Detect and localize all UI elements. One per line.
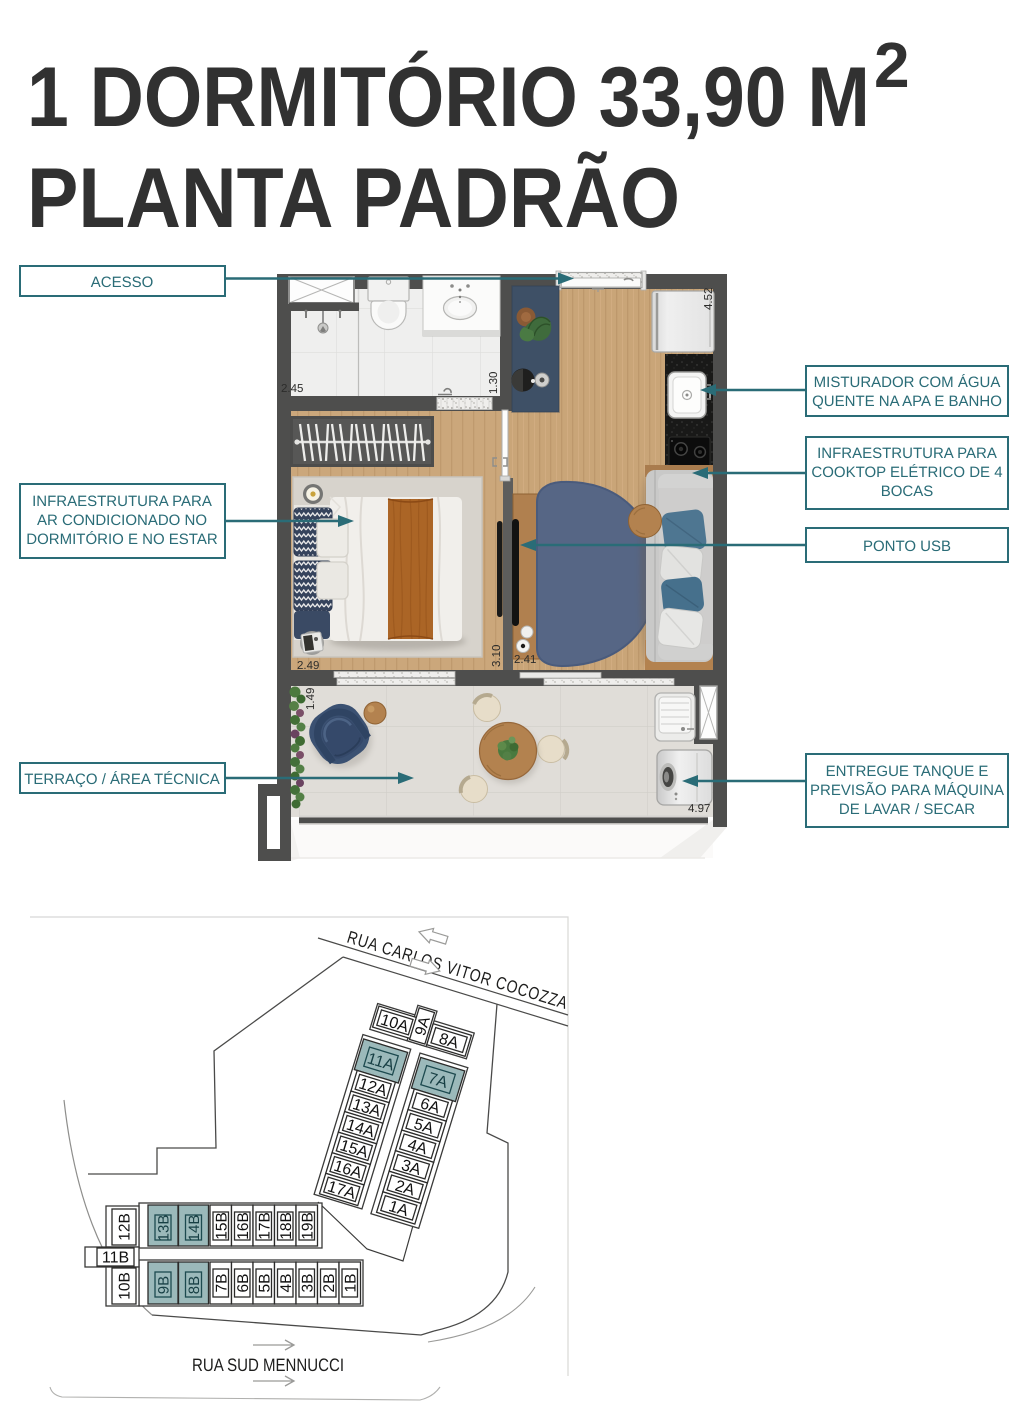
svg-text:TERRAÇO / ÁREA TÉCNICA: TERRAÇO / ÁREA TÉCNICA xyxy=(24,770,220,788)
svg-text:2: 2 xyxy=(874,29,910,101)
svg-text:13B: 13B xyxy=(156,1215,173,1242)
svg-text:3.10: 3.10 xyxy=(491,645,503,667)
svg-text:BOCAS: BOCAS xyxy=(881,483,934,500)
svg-text:2.45: 2.45 xyxy=(281,383,303,395)
svg-text:1.30: 1.30 xyxy=(488,372,500,394)
svg-text:3B: 3B xyxy=(299,1274,316,1293)
svg-text:4B: 4B xyxy=(278,1274,295,1293)
svg-text:RUA SUD MENNUCCI: RUA SUD MENNUCCI xyxy=(192,1355,344,1375)
svg-text:9B: 9B xyxy=(156,1276,173,1294)
svg-text:16B: 16B xyxy=(235,1212,252,1240)
svg-text:17B: 17B xyxy=(256,1212,273,1240)
svg-text:18B: 18B xyxy=(278,1212,295,1240)
svg-text:12B: 12B xyxy=(117,1213,134,1241)
svg-text:DORMITÓRIO E NO ESTAR: DORMITÓRIO E NO ESTAR xyxy=(26,530,218,548)
svg-text:11B: 11B xyxy=(102,1250,129,1267)
svg-text:MISTURADOR COM ÁGUA: MISTURADOR COM ÁGUA xyxy=(814,373,1001,391)
svg-text:ENTREGUE TANQUE E: ENTREGUE TANQUE E xyxy=(826,763,989,780)
svg-text:INFRAESTRUTURA PARA: INFRAESTRUTURA PARA xyxy=(817,445,997,462)
svg-text:PONTO USB: PONTO USB xyxy=(863,538,951,555)
svg-text:8B: 8B xyxy=(186,1276,203,1294)
svg-text:19B: 19B xyxy=(299,1212,316,1240)
svg-text:AR CONDICIONADO NO: AR CONDICIONADO NO xyxy=(37,512,207,529)
svg-text:2.49: 2.49 xyxy=(297,660,319,672)
svg-text:1 DORMITÓRIO 33,90 M: 1 DORMITÓRIO 33,90 M xyxy=(27,50,870,145)
svg-text:COOKTOP ELÉTRICO DE 4: COOKTOP ELÉTRICO DE 4 xyxy=(811,463,1002,481)
svg-text:4.97: 4.97 xyxy=(688,803,710,815)
svg-text:10B: 10B xyxy=(117,1272,134,1300)
svg-text:QUENTE NA APA E BANHO: QUENTE NA APA E BANHO xyxy=(812,393,1002,410)
svg-text:DE LAVAR / SECAR: DE LAVAR / SECAR xyxy=(839,801,975,818)
svg-text:PLANTA PADRÃO: PLANTA PADRÃO xyxy=(27,151,680,246)
svg-text:4.52: 4.52 xyxy=(703,288,715,310)
svg-text:ACESSO: ACESSO xyxy=(91,274,154,291)
svg-text:1B: 1B xyxy=(342,1274,359,1293)
svg-text:6B: 6B xyxy=(235,1274,252,1293)
svg-text:PREVISÃO PARA MÁQUINA: PREVISÃO PARA MÁQUINA xyxy=(810,781,1004,799)
svg-text:5B: 5B xyxy=(256,1274,273,1293)
svg-text:7B: 7B xyxy=(213,1274,230,1293)
svg-text:15B: 15B xyxy=(213,1212,230,1240)
svg-text:2.41: 2.41 xyxy=(514,654,536,666)
svg-text:1.49: 1.49 xyxy=(305,688,317,710)
svg-text:2B: 2B xyxy=(321,1274,338,1293)
svg-text:RUA CARLOS VITOR COCOZZA: RUA CARLOS VITOR COCOZZA xyxy=(345,927,571,1013)
svg-text:INFRAESTRUTURA PARA: INFRAESTRUTURA PARA xyxy=(32,493,212,510)
svg-text:14B: 14B xyxy=(186,1215,203,1242)
